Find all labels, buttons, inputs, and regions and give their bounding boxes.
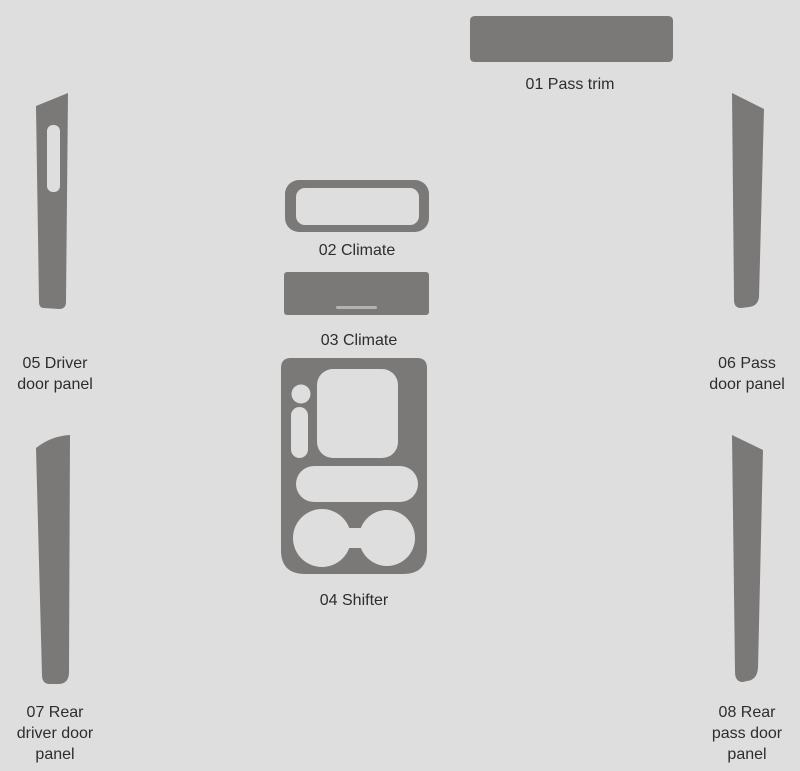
part-02-climate-shape xyxy=(285,180,429,232)
part-01-pass-trim-shape xyxy=(470,16,673,62)
parts-diagram: 01 Pass trim 02 Climate 03 Climate 04 Sh… xyxy=(0,0,800,771)
label-line: 08 Rear xyxy=(712,702,782,723)
part-08-rear-pass-door-panel-shape xyxy=(732,435,763,682)
label-line: door panel xyxy=(709,374,785,395)
label-line: 07 Rear xyxy=(17,702,93,723)
label-line: panel xyxy=(17,744,93,765)
part-01-label: 01 Pass trim xyxy=(526,74,615,95)
part-05-label: 05 Driver door panel xyxy=(17,353,93,395)
part-04-label: 04 Shifter xyxy=(320,590,388,611)
label-line: 06 Pass xyxy=(709,353,785,374)
label-line: pass door xyxy=(712,723,782,744)
parts-diagram-shapes xyxy=(0,0,800,771)
part-04-shifter-shape xyxy=(281,358,427,574)
part-03-climate-shape xyxy=(284,272,429,315)
label-line: panel xyxy=(712,744,782,765)
part-06-label: 06 Pass door panel xyxy=(709,353,785,395)
part-08-label: 08 Rear pass door panel xyxy=(712,702,782,765)
part-07-rear-driver-door-panel-shape xyxy=(36,435,70,684)
label-line: 04 Shifter xyxy=(320,590,388,611)
label-line: 01 Pass trim xyxy=(526,74,615,95)
part-07-label: 07 Rear driver door panel xyxy=(17,702,93,765)
part-03-label: 03 Climate xyxy=(321,330,397,351)
label-line: 02 Climate xyxy=(319,240,395,261)
part-02-label: 02 Climate xyxy=(319,240,395,261)
label-line: driver door xyxy=(17,723,93,744)
part-06-pass-door-panel-shape xyxy=(732,93,764,308)
label-line: 03 Climate xyxy=(321,330,397,351)
part-05-driver-door-panel-shape xyxy=(36,93,68,309)
label-line: 05 Driver xyxy=(17,353,93,374)
label-line: door panel xyxy=(17,374,93,395)
